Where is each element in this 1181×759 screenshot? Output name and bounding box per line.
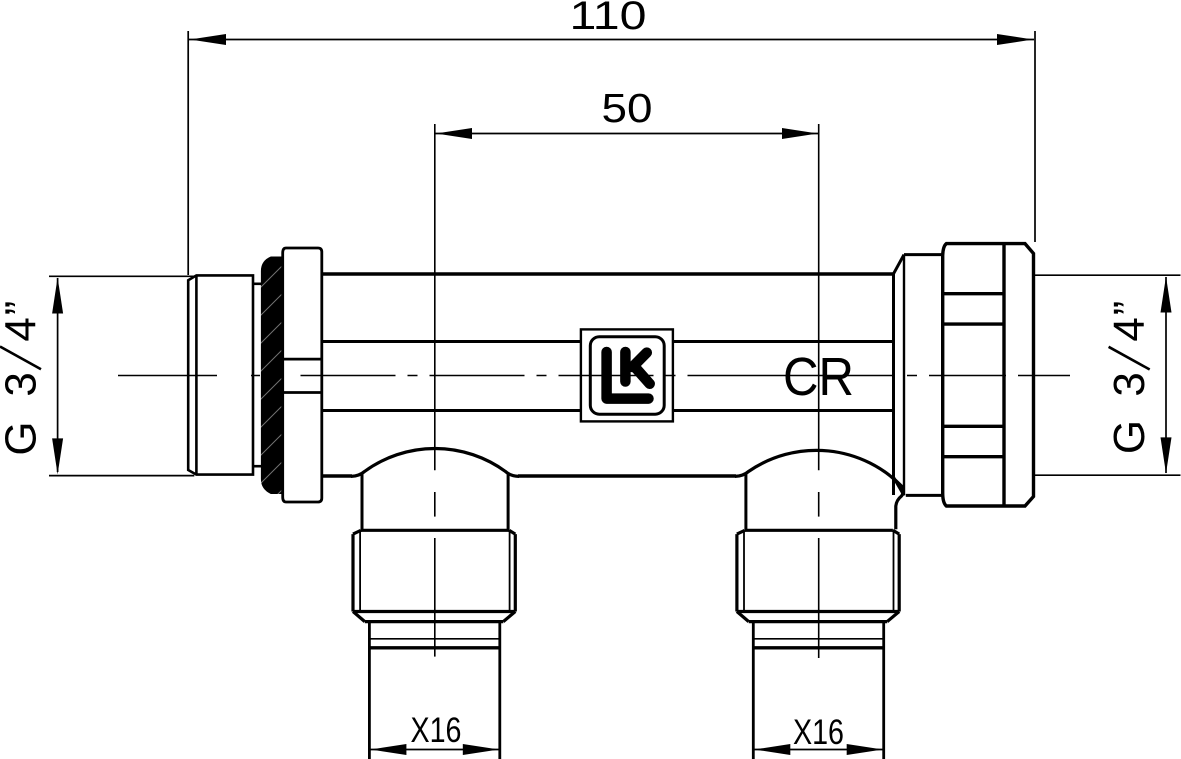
svg-text:G: G <box>0 421 46 455</box>
svg-text:G: G <box>1105 420 1154 454</box>
svg-text:50: 50 <box>602 85 653 131</box>
svg-text:4: 4 <box>1105 317 1154 341</box>
svg-text:”: ” <box>0 301 46 316</box>
svg-text:”: ” <box>1105 301 1154 316</box>
svg-text:3: 3 <box>1105 372 1154 396</box>
svg-text:3: 3 <box>0 372 46 396</box>
svg-text:X16: X16 <box>793 713 844 752</box>
svg-text:X16: X16 <box>411 711 462 750</box>
svg-text:110: 110 <box>570 0 647 38</box>
svg-text:CR: CR <box>783 347 854 407</box>
svg-text:4: 4 <box>0 317 46 341</box>
